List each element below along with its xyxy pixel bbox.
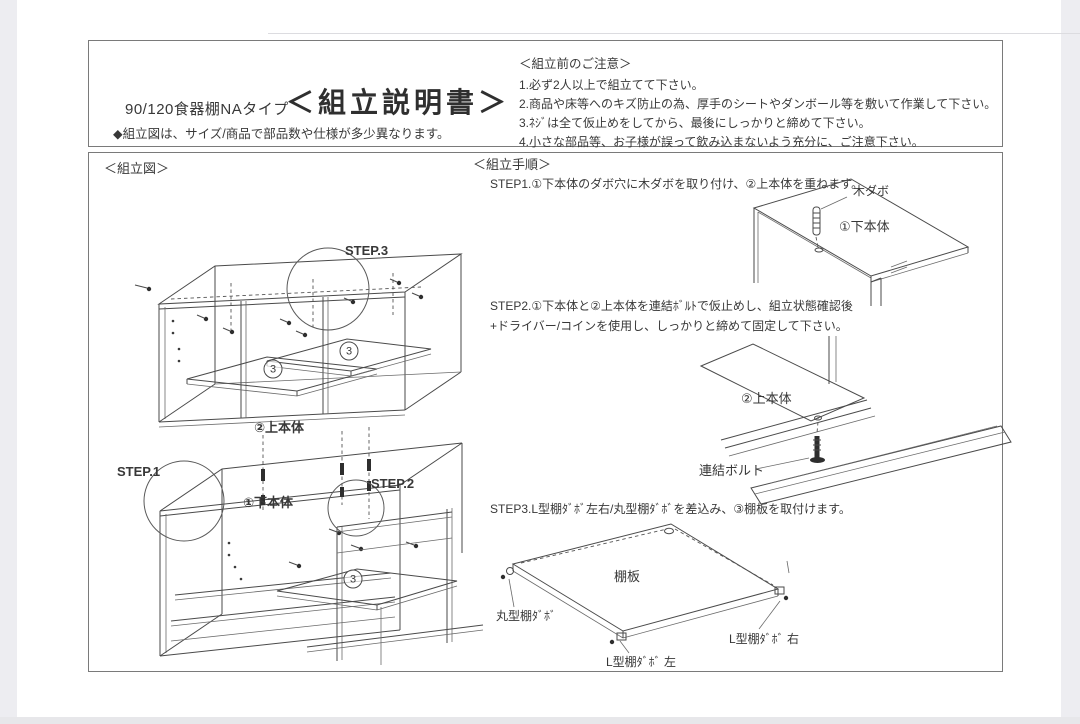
l-dowel-right-label: L型棚ﾀﾞﾎﾞ 右 — [729, 632, 799, 647]
shelf-number-badge: 3 — [264, 360, 283, 379]
leader-line — [620, 641, 629, 653]
shelf-number: 3 — [270, 363, 276, 375]
leader-line — [759, 601, 780, 629]
step2-instruction-line2: +ドライバー/コインを使用し、しっかりと締めて固定して下さい。 — [490, 319, 848, 334]
round-dowel-label: 丸型棚ﾀﾞﾎﾞ — [496, 609, 556, 624]
precautions-title: ＜組立前のご注意＞ — [519, 53, 989, 72]
l-dowel-left-label: L型棚ﾀﾞﾎﾞ 左 — [606, 655, 676, 670]
content-box: ＜組立図＞ — [88, 152, 1003, 672]
step3-instruction: STEP3.L型棚ﾀﾞﾎﾞ左右/丸型棚ﾀﾞﾎﾞを差込み、③棚板を取付けます。 — [490, 502, 851, 517]
lower-body-label: ①下本体 — [243, 495, 293, 511]
main-assembly-figure — [91, 223, 491, 673]
product-name: 90/120食器棚NAタイプ — [125, 101, 289, 120]
round-shelf-dowel-icon — [665, 528, 674, 534]
leader-line — [821, 197, 847, 209]
precaution-item: 4.小さな部品等、お子様が誤って飲み込まないよう充分に、ご注意下さい。 — [519, 133, 989, 152]
shelf-board-label: 棚板 — [614, 569, 640, 585]
precaution-item: 1.必ず2人以上で組立てて下さい。 — [519, 76, 989, 95]
connecting-bolt-icon — [810, 436, 825, 463]
shelf-number: 3 — [346, 345, 352, 357]
precaution-item: 2.商品や床等へのキズ防止の為、厚手のシートやダンボール等を敷いて作業して下さい… — [519, 95, 989, 114]
l-shelf-dowel-right-icon — [775, 561, 789, 600]
step2-instruction-line1: STEP2.①下本体と②上本体を連結ﾎﾞﾙﾄで仮止めし、組立状態確認後 — [490, 299, 853, 314]
precaution-item: 3.ﾈｼﾞは全て仮止めをしてから、最後にしっかりと締めて下さい。 — [519, 114, 989, 133]
step1-lower-body-label: ①下本体 — [839, 219, 890, 235]
step2-label: STEP.2 — [371, 476, 414, 492]
lower-cabinet-drawing — [144, 443, 483, 665]
page-bottom-margin — [0, 717, 1080, 724]
figure-section-title: ＜組立図＞ — [104, 161, 169, 177]
precautions-block: ＜組立前のご注意＞ 1.必ず2人以上で組立てて下さい。 2.商品や床等へのキズ防… — [519, 53, 989, 152]
leader-line — [509, 579, 514, 607]
fitting-icons — [289, 529, 418, 568]
round-shelf-dowel-icon — [501, 568, 514, 580]
size-note: ◆組立図は、サイズ/商品で部品数や仕様が多少異なります。 — [113, 127, 449, 143]
step3-label: STEP.3 — [345, 243, 388, 259]
shelf-number-badge: 3 — [340, 342, 359, 361]
wood-dowel-label: 木ダボ — [853, 184, 889, 199]
procedure-section-title: ＜組立手順＞ — [473, 157, 551, 173]
step3-figure — [481, 521, 811, 671]
shelf-number: 3 — [350, 573, 356, 585]
bolt-label: 連結ボルト — [699, 463, 764, 479]
title-box: 90/120食器棚NAタイプ ＜組立説明書＞ ◆組立図は、サイズ/商品で部品数や… — [88, 40, 1003, 147]
doc-title: ＜組立説明書＞ — [286, 85, 510, 120]
shelf-number-badge: 3 — [344, 570, 363, 589]
upper-cabinet-drawing — [135, 248, 461, 427]
scan-artifact-line — [268, 33, 1080, 34]
scanned-assembly-manual-page: 90/120食器棚NAタイプ ＜組立説明書＞ ◆組立図は、サイズ/商品で部品数や… — [0, 0, 1080, 724]
page-left-margin — [0, 0, 17, 724]
step2-upper-body-label: ②上本体 — [741, 391, 792, 407]
upper-body-label: ②上本体 — [254, 420, 304, 436]
page-right-margin — [1061, 0, 1080, 724]
precautions-list: 1.必ず2人以上で組立てて下さい。 2.商品や床等へのキズ防止の為、厚手のシート… — [519, 76, 989, 152]
step1-label: STEP.1 — [117, 464, 160, 480]
